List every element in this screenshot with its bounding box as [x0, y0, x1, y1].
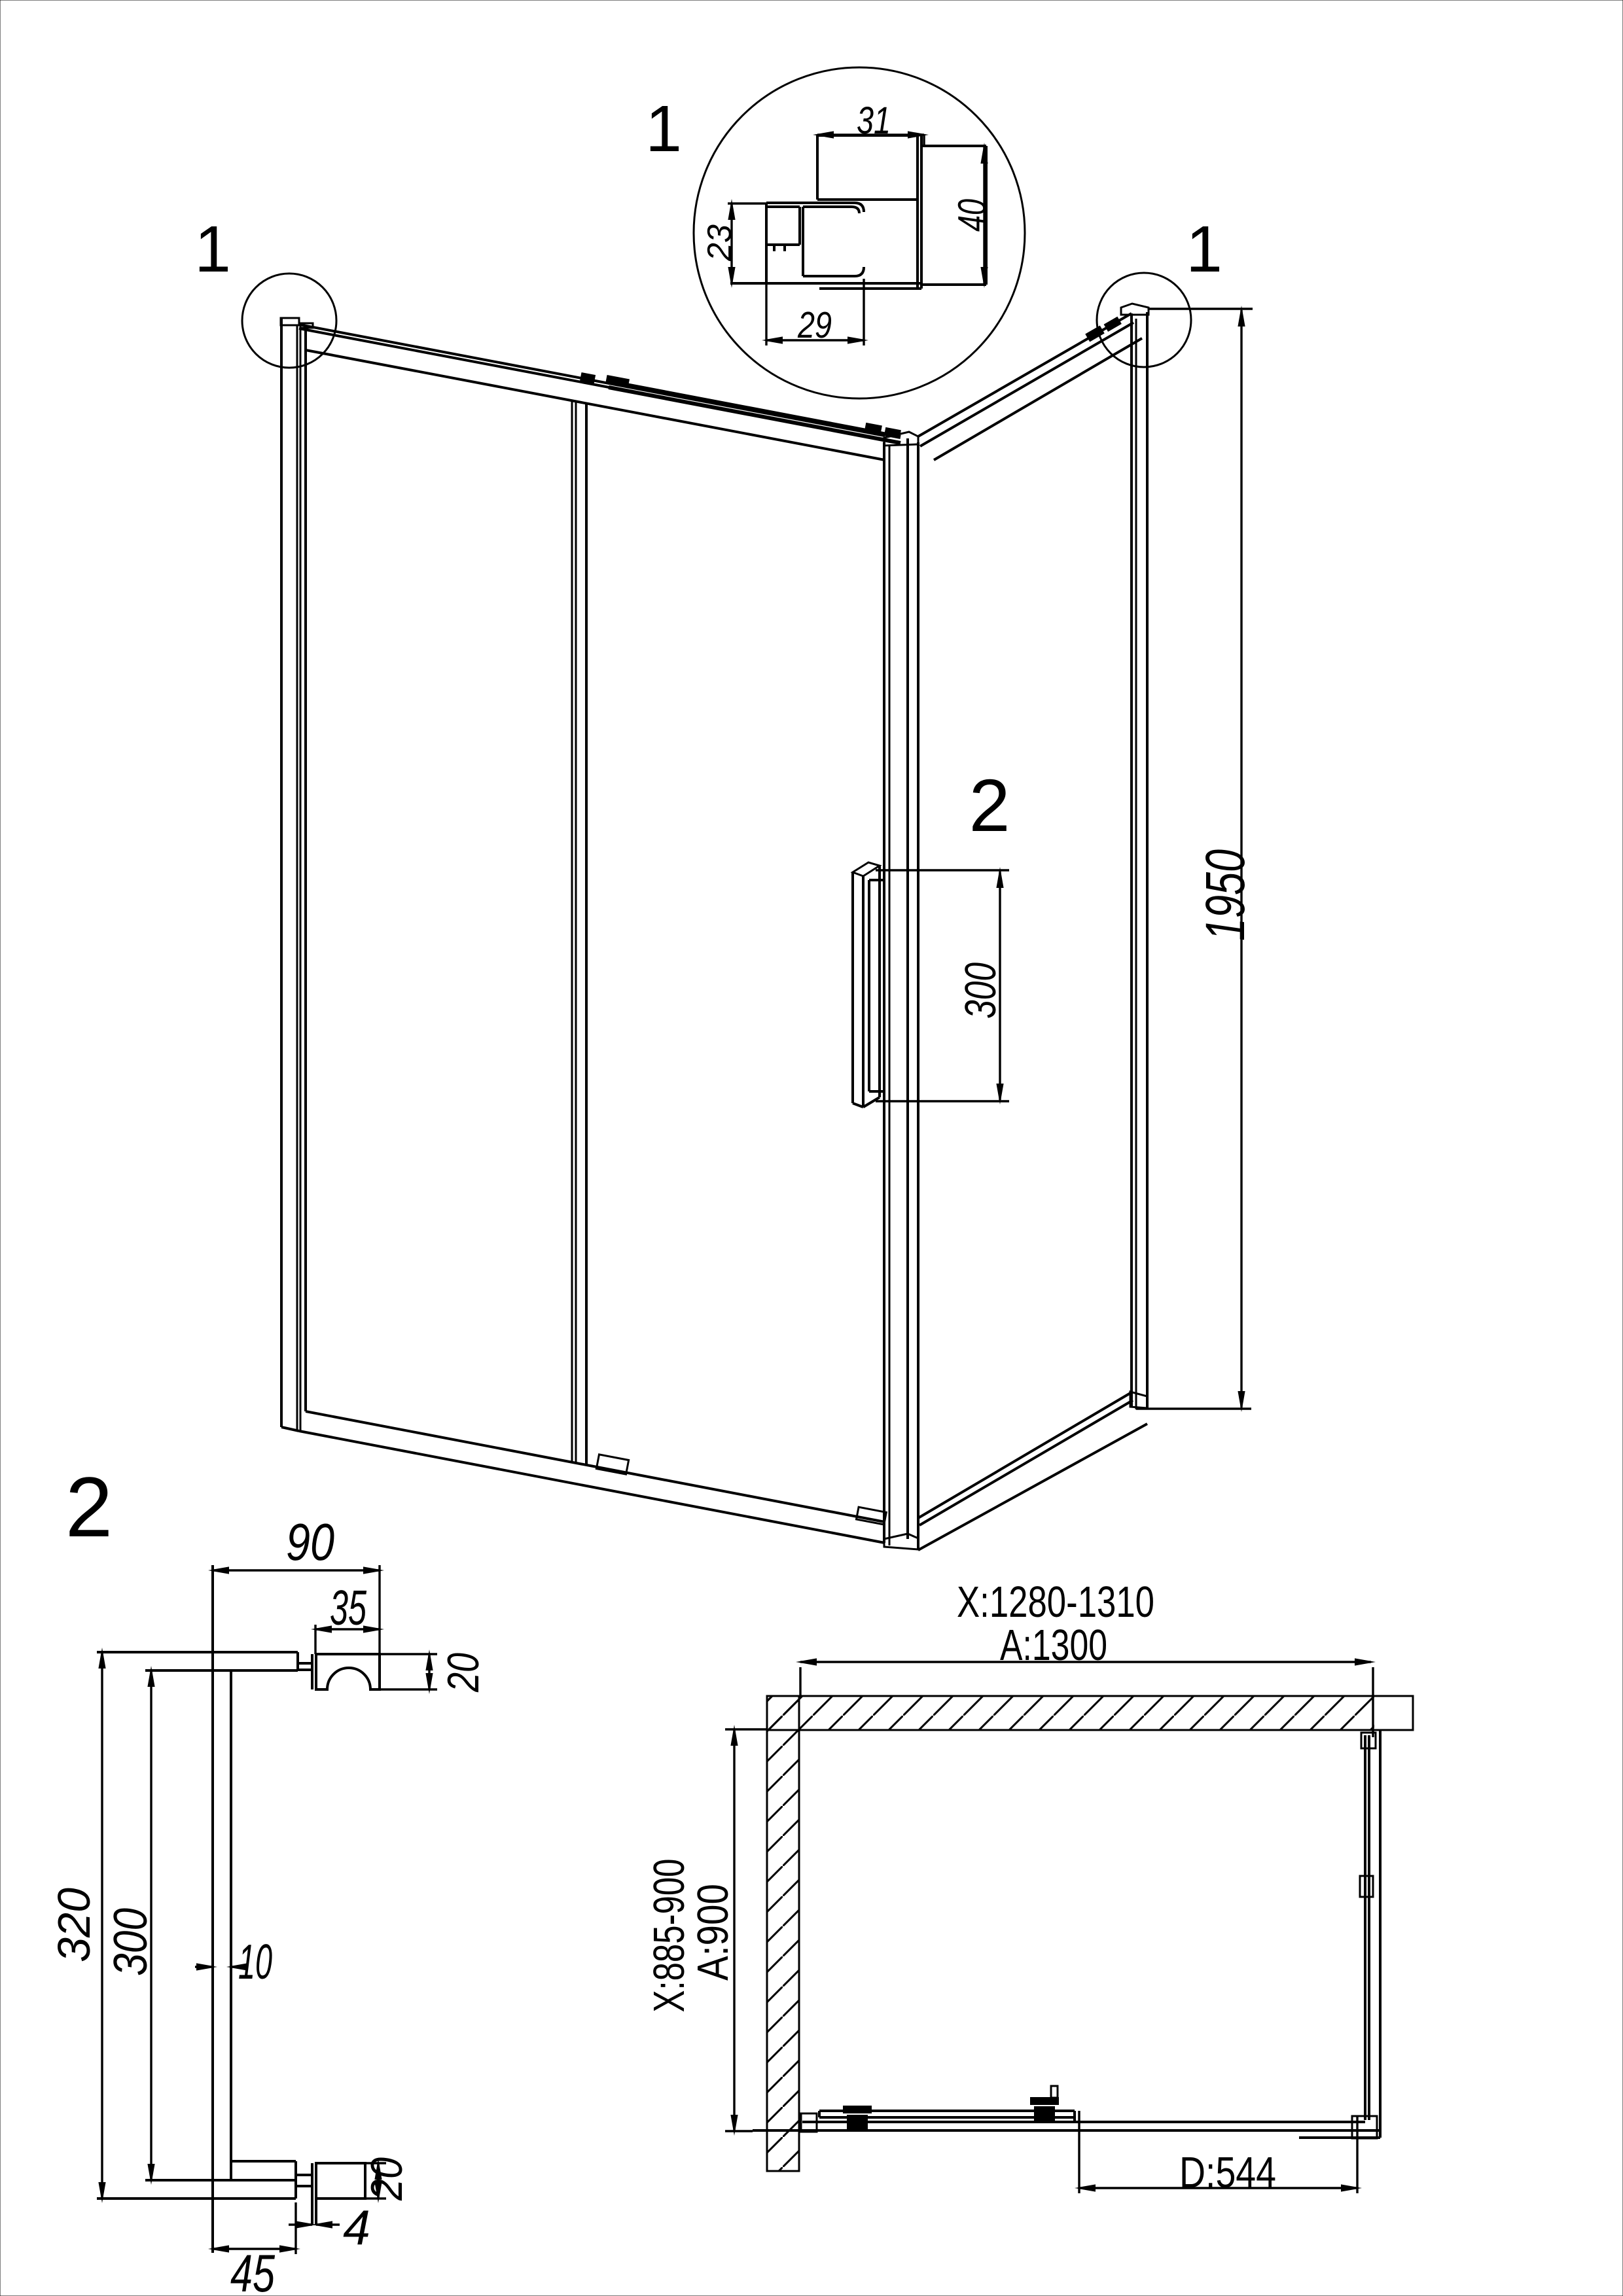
svg-text:40: 40: [950, 199, 994, 232]
svg-text:X:1280-1310: X:1280-1310: [957, 1578, 1154, 1627]
svg-text:300: 300: [105, 1908, 157, 1976]
svg-text:20: 20: [362, 2157, 412, 2201]
svg-text:300: 300: [956, 963, 1005, 1019]
svg-text:10: 10: [238, 1934, 272, 1989]
svg-text:35: 35: [330, 1580, 366, 1635]
svg-text:31: 31: [857, 99, 891, 142]
svg-text:1: 1: [645, 92, 682, 166]
svg-text:1: 1: [194, 213, 231, 286]
svg-text:1950: 1950: [1194, 849, 1256, 941]
svg-text:4: 4: [343, 2200, 370, 2255]
svg-text:23: 23: [701, 224, 739, 262]
svg-text:X:885-900: X:885-900: [645, 1859, 694, 2013]
svg-text:45: 45: [230, 2244, 276, 2296]
svg-text:2: 2: [65, 1459, 113, 1555]
svg-text:320: 320: [48, 1888, 99, 1962]
svg-text:20: 20: [438, 1653, 488, 1693]
svg-text:A:1300: A:1300: [1000, 1621, 1107, 1670]
svg-text:A:900: A:900: [688, 1884, 738, 1981]
svg-text:29: 29: [797, 304, 832, 346]
svg-text:1: 1: [1186, 213, 1222, 286]
svg-text:D:544: D:544: [1179, 2148, 1276, 2197]
svg-text:2: 2: [969, 764, 1010, 847]
svg-text:90: 90: [286, 1513, 334, 1571]
